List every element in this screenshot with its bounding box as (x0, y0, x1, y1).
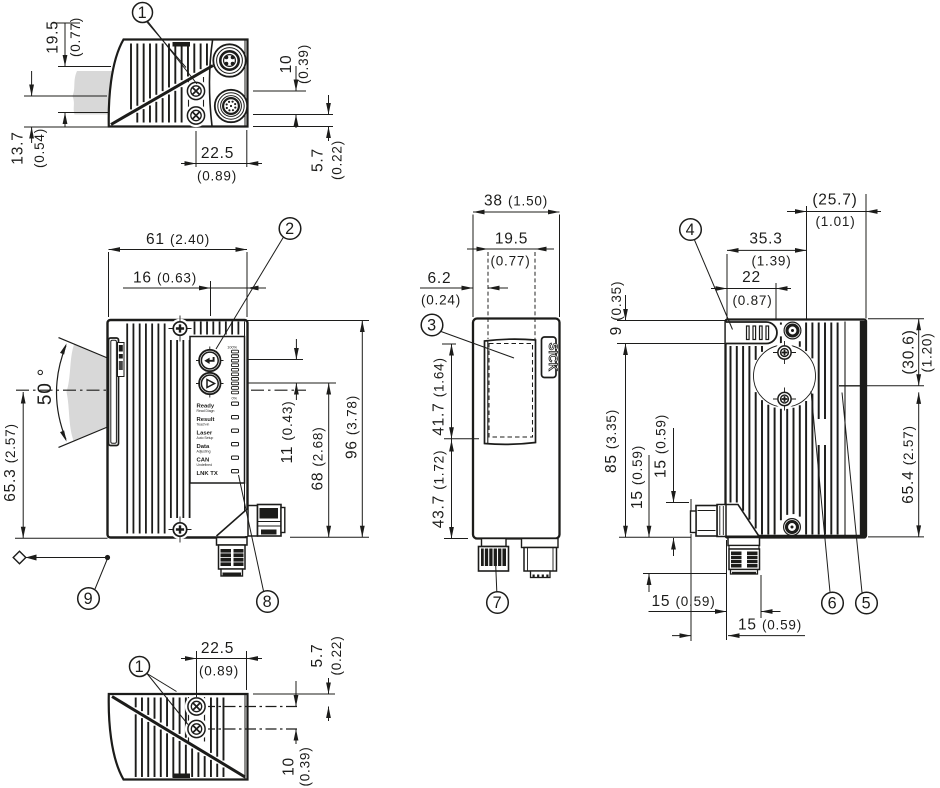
svg-text:5.7: 5.7 (310, 148, 327, 172)
svg-text:9 (0.35): 9 (0.35) (608, 281, 625, 336)
svg-text:19.5: 19.5 (45, 20, 62, 53)
svg-text:Auto Setup: Auto Setup (197, 436, 214, 440)
svg-text:(1.01): (1.01) (815, 214, 855, 229)
svg-text:13.7: 13.7 (10, 131, 27, 164)
svg-text:15 (0.59): 15 (0.59) (738, 617, 802, 634)
svg-text:6.2: 6.2 (428, 270, 452, 287)
svg-text:(0.54): (0.54) (32, 128, 47, 168)
svg-text:8: 8 (263, 593, 273, 611)
svg-text:(0.39): (0.39) (296, 44, 311, 84)
svg-text:50 °: 50 ° (35, 368, 56, 405)
svg-text:4: 4 (686, 221, 696, 239)
svg-text:SICK: SICK (546, 343, 558, 372)
svg-text:LNK TX: LNK TX (197, 471, 218, 477)
svg-text:(0.22): (0.22) (330, 140, 345, 180)
svg-text:(30.6): (30.6) (901, 329, 918, 374)
svg-text:Adjusting: Adjusting (197, 450, 211, 454)
svg-text:3: 3 (427, 317, 437, 335)
svg-text:19.5: 19.5 (495, 231, 528, 248)
svg-text:22: 22 (742, 269, 761, 286)
svg-text:68 (2.68): 68 (2.68) (310, 426, 327, 490)
svg-text:(0.22): (0.22) (329, 635, 344, 675)
svg-text:Read Diagn: Read Diagn (197, 409, 215, 413)
svg-text:1: 1 (135, 658, 145, 676)
svg-text:(0.24): (0.24) (421, 293, 461, 308)
svg-text:35.3: 35.3 (749, 231, 782, 248)
svg-text:65.4 (2.57): 65.4 (2.57) (900, 425, 917, 504)
svg-text:5.7: 5.7 (309, 644, 326, 668)
svg-text:(25.7): (25.7) (812, 192, 857, 209)
svg-text:(0.89): (0.89) (197, 169, 237, 184)
svg-text:Teach-in: Teach-in (197, 423, 210, 427)
svg-text:(0.89): (0.89) (199, 664, 239, 679)
svg-text:15 (0.59): 15 (0.59) (653, 414, 670, 478)
svg-text:10: 10 (278, 55, 295, 74)
svg-text:10: 10 (281, 757, 298, 776)
svg-text:96 (3.78): 96 (3.78) (344, 395, 361, 459)
svg-text:7: 7 (493, 594, 503, 612)
svg-text:(0.77): (0.77) (68, 17, 83, 57)
svg-text:0%: 0% (232, 397, 238, 401)
svg-text:43.7 (1.72): 43.7 (1.72) (431, 450, 448, 529)
svg-text:5: 5 (862, 595, 872, 613)
svg-text:41.7 (1.64): 41.7 (1.64) (431, 357, 448, 436)
svg-text:9: 9 (84, 590, 94, 608)
svg-text:11 (0.43): 11 (0.43) (279, 401, 296, 464)
svg-text:6: 6 (828, 595, 838, 613)
svg-text:2: 2 (285, 220, 295, 238)
svg-text:85 (3.35): 85 (3.35) (603, 409, 620, 473)
svg-text:15 (0.59): 15 (0.59) (651, 593, 715, 610)
svg-text:22.5: 22.5 (201, 640, 234, 657)
svg-text:(0.77): (0.77) (490, 254, 530, 269)
svg-text:16 (0.63): 16 (0.63) (133, 270, 197, 287)
svg-text:22.5: 22.5 (201, 145, 234, 162)
svg-text:38 (1.50): 38 (1.50) (484, 193, 548, 210)
svg-text:100%: 100% (227, 345, 237, 349)
svg-text:1: 1 (138, 4, 148, 22)
svg-text:15 (0.59): 15 (0.59) (629, 445, 646, 509)
svg-text:(0.39): (0.39) (298, 746, 313, 786)
svg-text:(1.39): (1.39) (751, 254, 791, 269)
svg-text:Undefined: Undefined (197, 463, 213, 467)
svg-text:(0.87): (0.87) (732, 293, 772, 308)
svg-text:65.3 (2.57): 65.3 (2.57) (2, 423, 19, 502)
svg-text:(1.20): (1.20) (920, 332, 935, 372)
svg-text:61 (2.40): 61 (2.40) (146, 231, 210, 248)
